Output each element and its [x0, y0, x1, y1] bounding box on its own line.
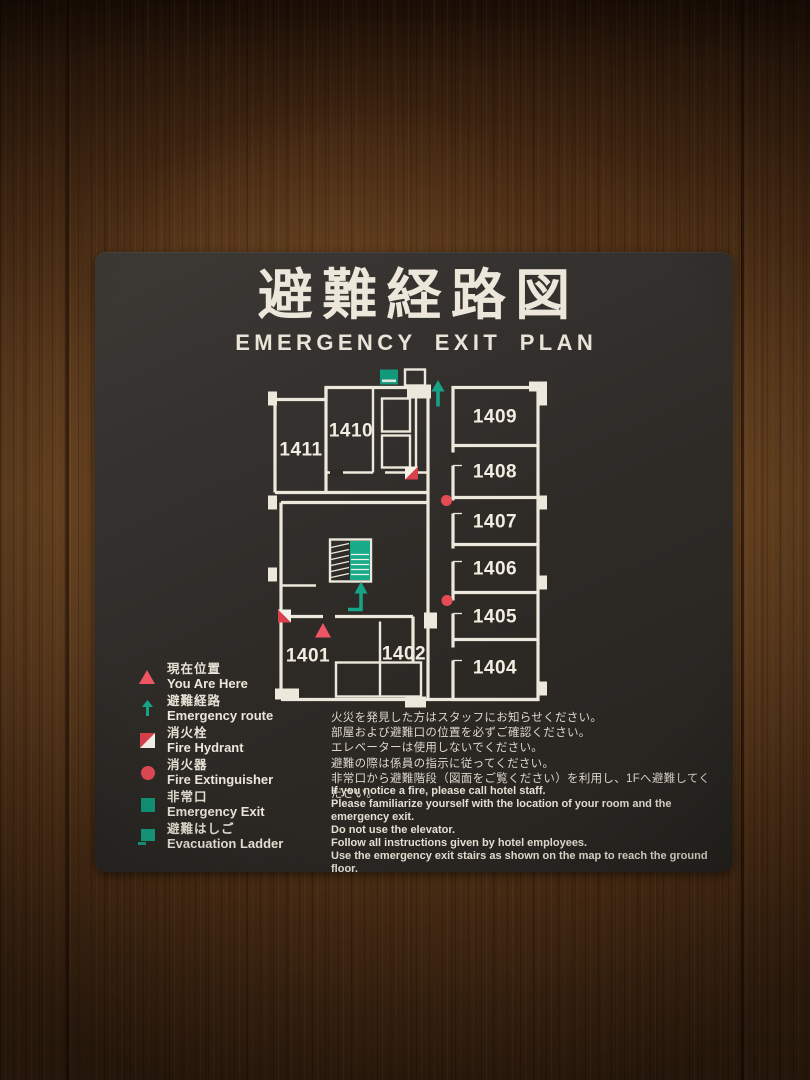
photo-vignette — [0, 0, 810, 1080]
wood-door-background: 避難経路図 EMERGENCY EXIT PLAN — [0, 0, 810, 1080]
